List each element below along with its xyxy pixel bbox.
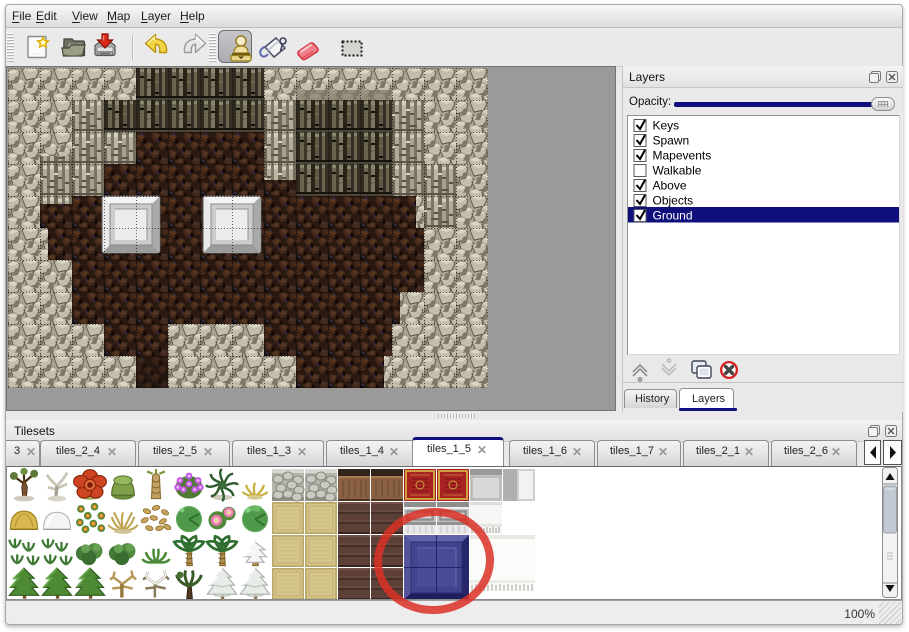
svg-text:Objects: Objects	[653, 194, 694, 208]
svg-text:Spawn: Spawn	[653, 134, 690, 148]
svg-text:Mapevents: Mapevents	[653, 149, 712, 163]
svg-text:Ground: Ground	[653, 209, 693, 223]
svg-text:Keys: Keys	[653, 119, 680, 133]
svg-text:Walkable: Walkable	[653, 164, 702, 178]
svg-text:Above: Above	[653, 179, 687, 193]
